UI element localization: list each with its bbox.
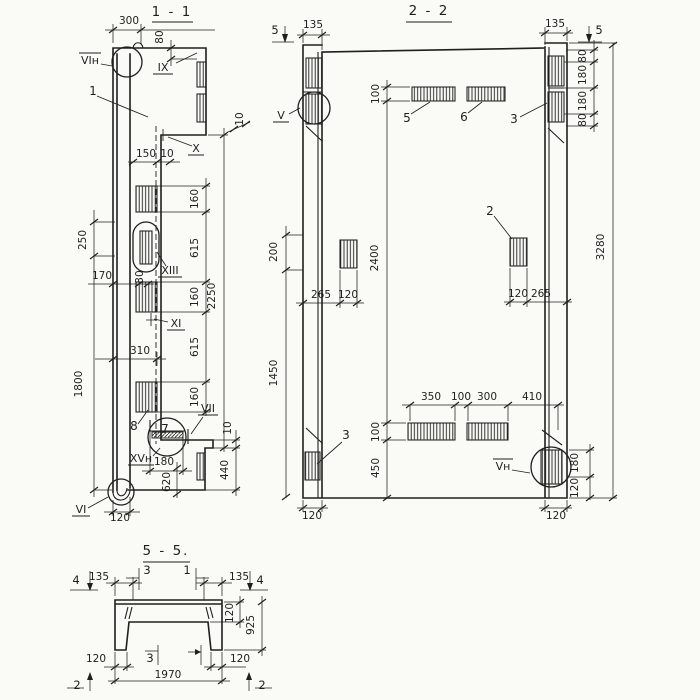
- dim-100-mid: 100: [451, 391, 471, 403]
- dim-80-a: 80: [577, 49, 589, 62]
- dim-30: 30: [134, 270, 146, 283]
- cut-marker-5-left: 5: [271, 23, 278, 37]
- texts-1-1: 1 - 1 300 80 VIн 1 IX 10 X 150 10 160 61…: [73, 4, 246, 524]
- dim-310: 310: [130, 345, 150, 357]
- ref-vii: VII: [201, 402, 215, 415]
- dim-300: 300: [119, 15, 139, 27]
- shear-key: [197, 453, 205, 480]
- ref-vin: VIн: [81, 54, 99, 67]
- dim-2400: 2400: [369, 245, 381, 272]
- embedded-plate: [467, 87, 505, 101]
- dim-250: 250: [77, 230, 89, 250]
- embedded-plate: [136, 382, 157, 412]
- dim-160-b: 160: [189, 287, 201, 307]
- ref-vn: Vн: [496, 460, 511, 473]
- embedded-plate: [510, 238, 527, 266]
- dim-410: 410: [522, 391, 542, 403]
- embedded-plate: [467, 423, 508, 440]
- ref-x: X: [192, 142, 200, 155]
- embedded-plate: [548, 56, 564, 86]
- dim-100-top: 100: [370, 84, 382, 104]
- dim-1450: 1450: [268, 360, 280, 387]
- dim-440: 440: [219, 460, 231, 480]
- dim-120-left: 120: [338, 289, 358, 301]
- dim-135-right: 135: [545, 18, 565, 30]
- embedded-plate: [412, 87, 455, 101]
- ref-vi: VI: [76, 503, 87, 516]
- dim-180-a: 180: [577, 65, 589, 85]
- dim-100-bottom: 100: [370, 422, 382, 442]
- embedded-plate: [340, 240, 357, 268]
- cut-marker-1-top: 1: [183, 563, 190, 577]
- dim-180-b: 180: [577, 91, 589, 111]
- dim-120-br: 120: [569, 478, 581, 498]
- ref-v: V: [277, 109, 285, 122]
- shear-key: [197, 62, 206, 87]
- dim-120: 120: [110, 512, 130, 524]
- section-title-1-1: 1 - 1: [152, 4, 193, 20]
- cut-marker-3-top: 3: [143, 563, 150, 577]
- embedded-plate: [306, 94, 322, 124]
- dim-120-bottom-right: 120: [546, 510, 566, 522]
- dim-1970: 1970: [155, 669, 182, 681]
- section-view-1-1: 1 - 1 300 80 VIн 1 IX 10 X 150 10 160 61…: [72, 4, 250, 524]
- dim-10-step: 10: [160, 148, 173, 160]
- dim-160-a: 160: [189, 189, 201, 209]
- embedded-plate: [408, 423, 455, 440]
- part-label-3-bottom: 3: [342, 428, 350, 442]
- cut-marker-4-right: 4: [256, 573, 263, 587]
- embedded-plate: [136, 282, 157, 312]
- dim-615-a: 615: [189, 238, 201, 258]
- part-label-2: 2: [486, 204, 494, 218]
- dim-265-right: 265: [531, 288, 551, 300]
- dim-615-b: 615: [189, 337, 201, 357]
- drawing-sheet: 1 - 1 300 80 VIн 1 IX 10 X 150 10 160 61…: [0, 0, 700, 700]
- dim-3280: 3280: [595, 234, 607, 261]
- ref-ix: IX: [158, 61, 169, 74]
- dim-180-br: 180: [569, 453, 581, 473]
- dim-200: 200: [268, 242, 280, 262]
- dim-120-bottom-left: 120: [86, 653, 106, 665]
- dim-150: 150: [136, 148, 156, 160]
- section-title-2-2: 2 - 2: [409, 3, 450, 19]
- cut-marker-3-bottom: 3: [146, 651, 153, 665]
- dim-925: 925: [245, 615, 257, 635]
- dim-10-key: 10: [234, 112, 246, 125]
- embedded-plate: [541, 450, 562, 484]
- part-label-7: 7: [161, 422, 169, 436]
- ref-xvn: XVн: [130, 452, 152, 465]
- embedded-plate: [306, 58, 322, 88]
- cut-marker-2-right: 2: [258, 678, 265, 692]
- dim-265-left: 265: [311, 289, 331, 301]
- dim-120-bottom-right: 120: [230, 653, 250, 665]
- dim-160-c: 160: [189, 387, 201, 407]
- dim-1800: 1800: [73, 371, 85, 398]
- channel-outline-5-5: [115, 600, 222, 650]
- cut-marker-4-left: 4: [72, 573, 79, 587]
- ref-xiii: XIII: [161, 264, 178, 277]
- shear-key: [197, 94, 206, 122]
- part-label-8: 8: [130, 419, 138, 433]
- dim-120-bottom-left: 120: [302, 510, 322, 522]
- embedded-plates-2-2: [298, 56, 571, 487]
- dim-120-slab: 120: [224, 603, 236, 623]
- part-label-1: 1: [89, 84, 97, 98]
- dim-135-right: 135: [229, 571, 249, 583]
- dim-10-ledge: 10: [222, 421, 234, 434]
- dim-80-b: 80: [577, 113, 589, 126]
- dim-135-left: 135: [89, 571, 109, 583]
- lifting-slot-insert: [140, 231, 152, 264]
- ref-xi: XI: [171, 317, 182, 330]
- section-arrow: [87, 672, 93, 680]
- dim-170: 170: [92, 270, 112, 282]
- embedded-plate: [136, 186, 157, 212]
- texts-5-5: 5 - 5. 4 135 3 1 135 4 120 925 120 3 120…: [72, 543, 265, 692]
- part-label-6: 6: [460, 110, 468, 124]
- dim-300: 300: [477, 391, 497, 403]
- cut-marker-5-right: 5: [595, 23, 602, 37]
- dim-350: 350: [421, 391, 441, 403]
- dim-80: 80: [154, 30, 166, 43]
- embedded-plate: [548, 92, 564, 122]
- dim-2250: 2250: [206, 283, 218, 310]
- drawing-svg: 1 - 1 300 80 VIн 1 IX 10 X 150 10 160 61…: [0, 0, 700, 700]
- dim-135-left: 135: [303, 19, 323, 31]
- cut-marker-2-left: 2: [73, 678, 80, 692]
- part-label-3-top: 3: [510, 112, 518, 126]
- section-view-2-2: 2 - 2 5 135 135 5 80 180 180 80 3280 100…: [268, 3, 617, 522]
- section-title-5-5: 5 - 5.: [143, 543, 190, 559]
- dim-620: 620: [161, 472, 173, 492]
- embedded-plate: [305, 452, 320, 480]
- section-arrow: [246, 672, 252, 680]
- cut-line-arrow: [195, 649, 201, 655]
- dim-180: 180: [154, 456, 174, 468]
- section-view-5-5: 5 - 5. 4 135 3 1 135 4 120 925 120 3 120…: [67, 543, 272, 692]
- dim-450: 450: [370, 458, 382, 478]
- dim-120-right: 120: [508, 288, 528, 300]
- part-label-5: 5: [403, 111, 411, 125]
